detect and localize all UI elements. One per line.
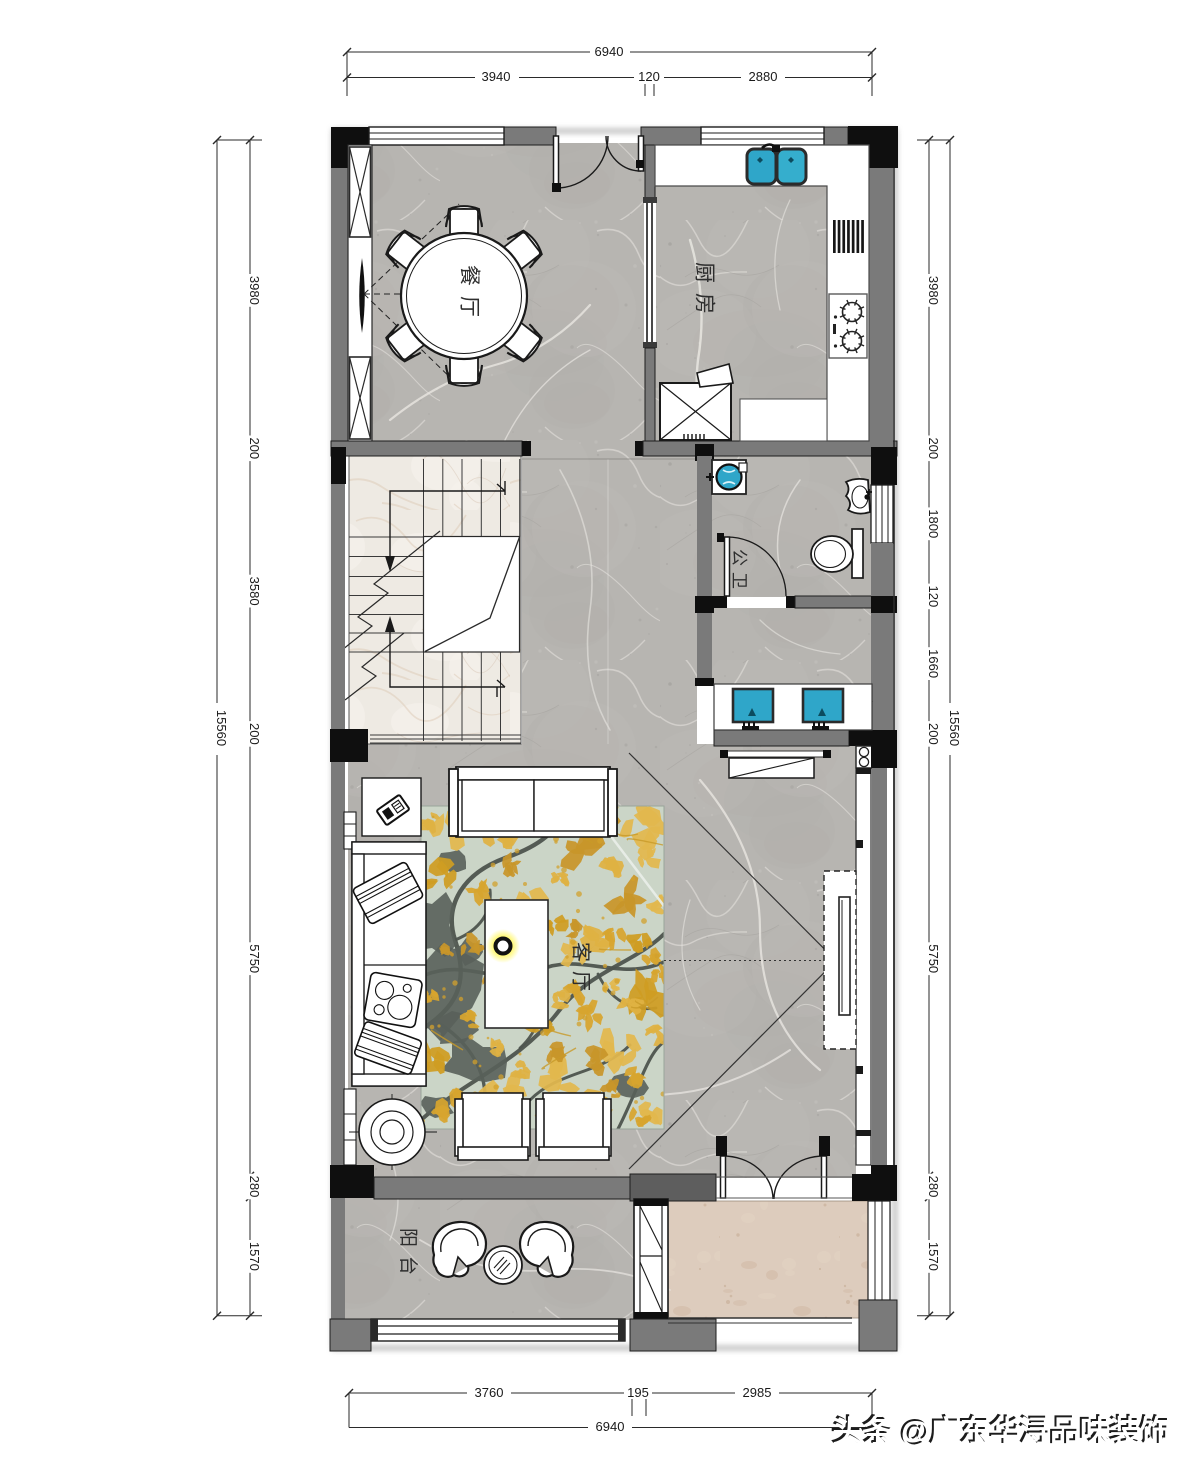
svg-text:3760: 3760 xyxy=(475,1385,504,1400)
svg-text:5750: 5750 xyxy=(247,944,262,973)
svg-text:3980: 3980 xyxy=(926,276,941,305)
svg-text:公卫: 公卫 xyxy=(730,549,749,595)
svg-text:1660: 1660 xyxy=(926,649,941,678)
svg-text:2985: 2985 xyxy=(743,1385,772,1400)
svg-text:200: 200 xyxy=(926,723,941,745)
svg-text:3940: 3940 xyxy=(482,69,511,84)
svg-text:280: 280 xyxy=(926,1176,941,1198)
svg-text:1800: 1800 xyxy=(926,509,941,538)
svg-text:1570: 1570 xyxy=(247,1242,262,1271)
svg-text:阳台: 阳台 xyxy=(397,1228,419,1284)
svg-text:195: 195 xyxy=(627,1385,649,1400)
svg-text:6940: 6940 xyxy=(596,1419,625,1434)
svg-text:200: 200 xyxy=(926,437,941,459)
svg-text:3980: 3980 xyxy=(247,276,262,305)
svg-text:120: 120 xyxy=(926,586,941,608)
svg-text:2880: 2880 xyxy=(749,69,778,84)
svg-text:3580: 3580 xyxy=(247,577,262,606)
svg-text:客厅: 客厅 xyxy=(570,942,593,1000)
svg-text:头条 @广东华浔品味装饰: 头条 @广东华浔品味装饰 xyxy=(833,1415,1171,1449)
svg-text:5750: 5750 xyxy=(926,944,941,973)
svg-text:200: 200 xyxy=(247,437,262,459)
svg-text:280: 280 xyxy=(247,1176,262,1198)
svg-text:餐厅: 餐厅 xyxy=(457,265,480,327)
svg-text:200: 200 xyxy=(247,723,262,745)
svg-text:15560: 15560 xyxy=(214,710,229,746)
svg-text:120: 120 xyxy=(638,69,660,84)
svg-text:6940: 6940 xyxy=(595,44,624,59)
svg-text:1570: 1570 xyxy=(926,1242,941,1271)
svg-text:厨房: 厨房 xyxy=(692,262,715,324)
svg-text:15560: 15560 xyxy=(947,710,962,746)
